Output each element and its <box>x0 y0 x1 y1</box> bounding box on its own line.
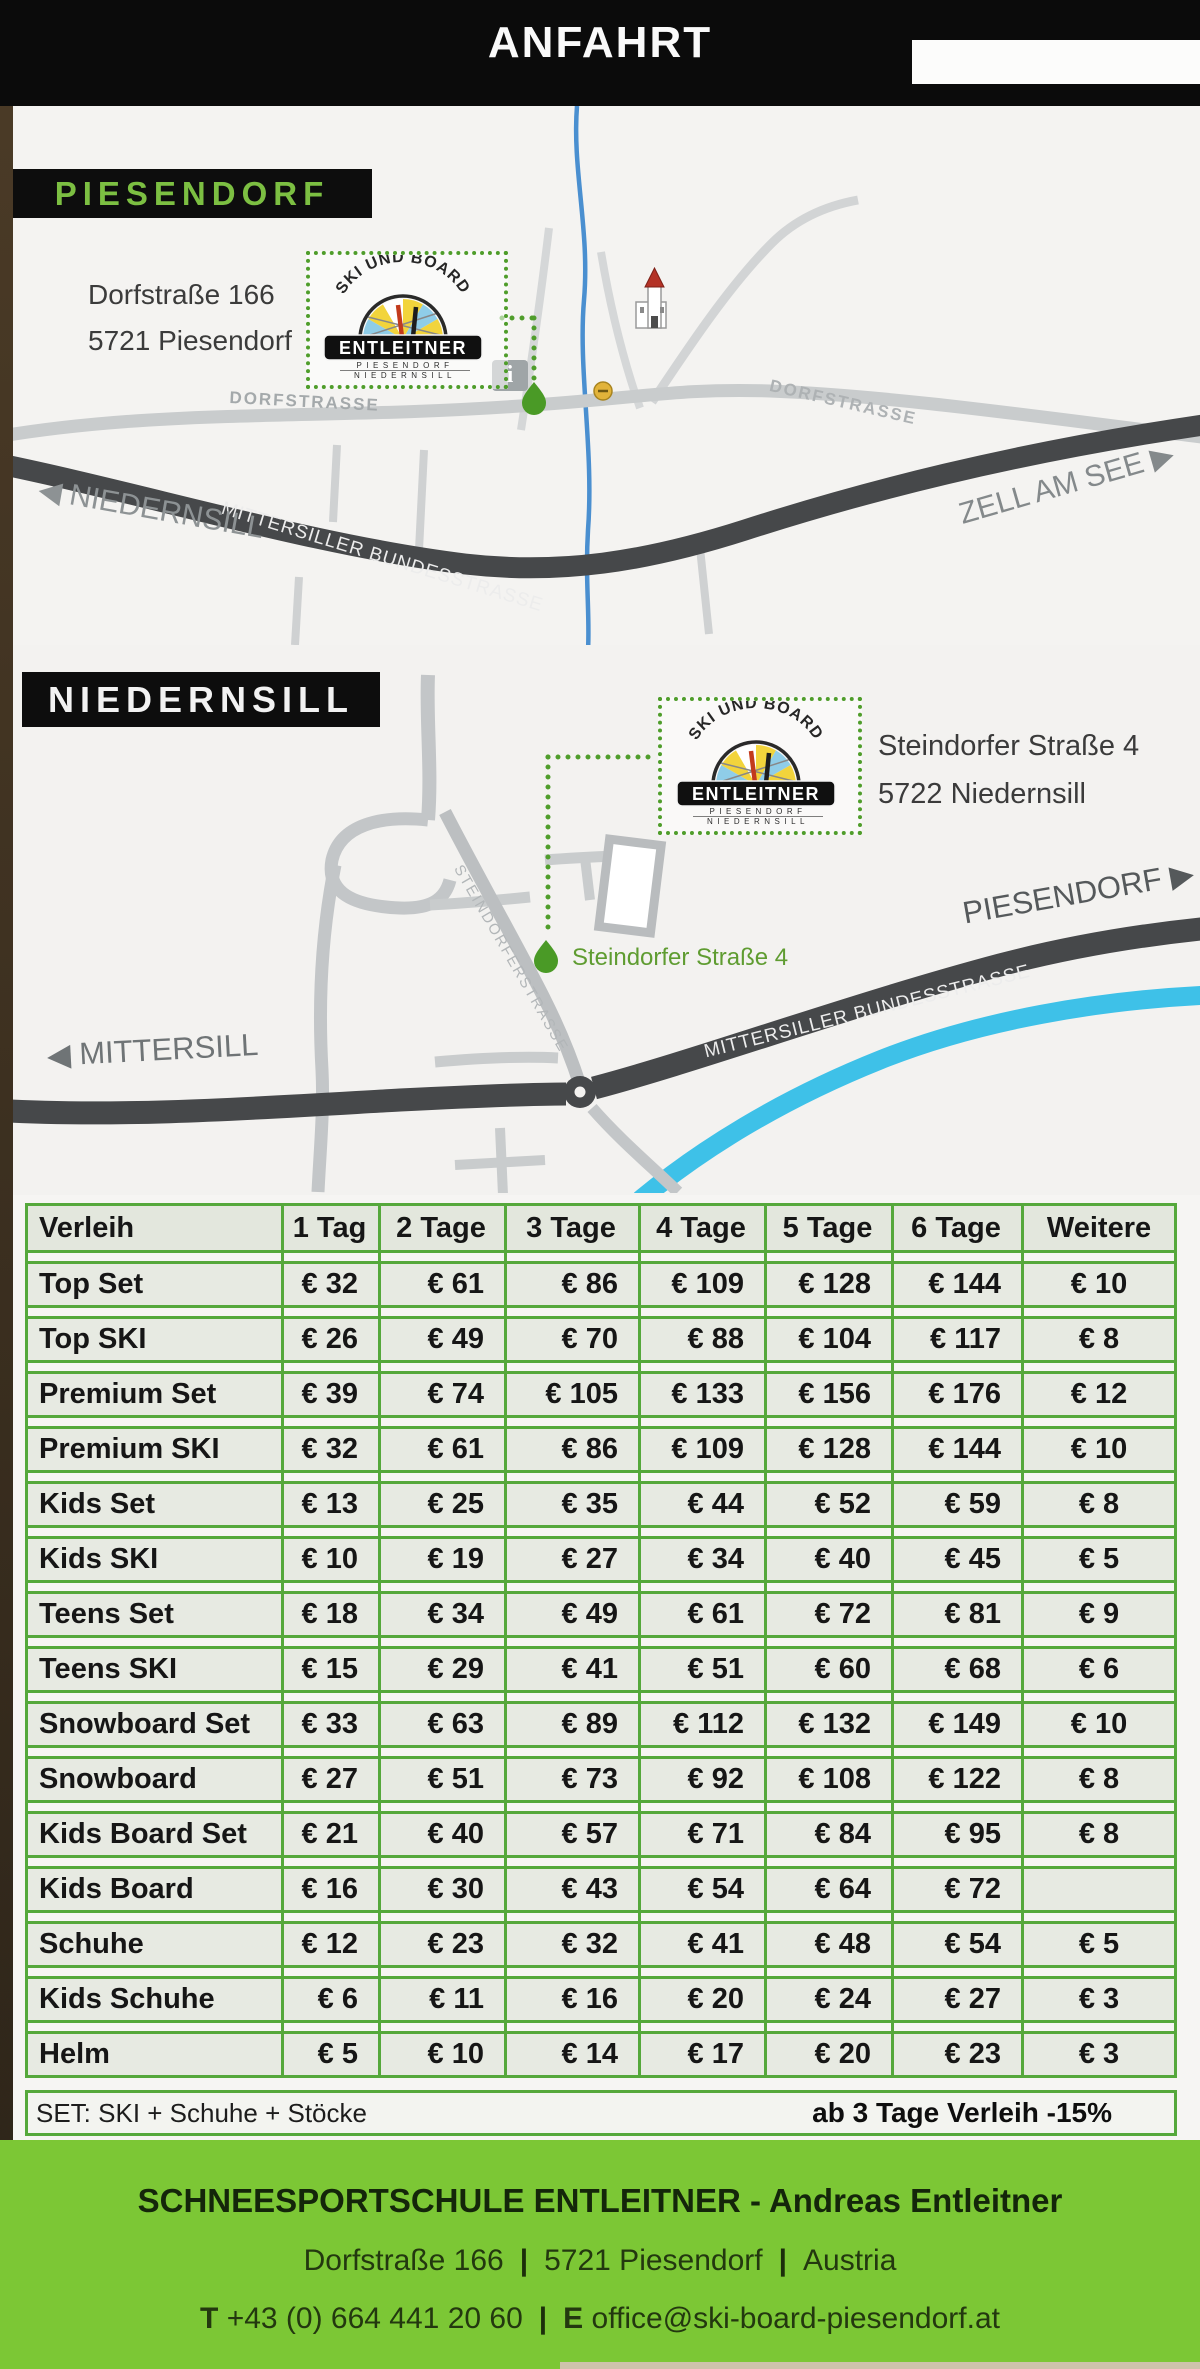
price-cell: € 3 <box>1021 1983 1177 2016</box>
photo-edge <box>560 2362 1200 2369</box>
price-cell: € 3 <box>1021 2038 1177 2071</box>
column-header: 1 Tag <box>281 1212 378 1245</box>
price-cell: € 61 <box>378 1433 504 1466</box>
price-cell: € 8 <box>1021 1818 1177 1851</box>
price-cell: € 73 <box>504 1763 638 1796</box>
price-cell: € 59 <box>891 1488 1021 1521</box>
price-cell: € 61 <box>378 1268 504 1301</box>
price-cell: € 39 <box>281 1378 378 1411</box>
section-label-niedernsill: NIEDERNSILL <box>22 672 380 727</box>
column-header: Weitere <box>1021 1212 1177 1245</box>
row-label: Snowboard <box>25 1763 281 1796</box>
logo-arc-text: SKI UND BOARD <box>333 255 474 297</box>
price-cell: € 89 <box>504 1708 638 1741</box>
table-row: Teens Set € 18 € 34 € 49 € 61 € 72 € 81 … <box>25 1591 1177 1638</box>
price-cell: € 32 <box>504 1928 638 1961</box>
price-cell: € 35 <box>504 1488 638 1521</box>
price-cell: € 12 <box>1021 1378 1177 1411</box>
row-label: Teens Set <box>25 1598 281 1631</box>
price-cell: € 24 <box>764 1983 891 2016</box>
header-bar: ANFAHRT <box>0 0 1200 106</box>
price-cell: € 49 <box>504 1598 638 1631</box>
price-cell: € 23 <box>891 2038 1021 2071</box>
price-cell: € 6 <box>281 1983 378 2016</box>
row-label: Kids Schuhe <box>25 1983 281 2016</box>
table-row: Snowboard € 27 € 51 € 73 € 92 € 108 € 12… <box>25 1756 1177 1803</box>
price-cell: € 63 <box>378 1708 504 1741</box>
row-label: Teens SKI <box>25 1653 281 1686</box>
table-header-row: Verleih 1 Tag 2 Tage 3 Tage 4 Tage 5 Tag… <box>25 1203 1177 1253</box>
price-cell: € 122 <box>891 1763 1021 1796</box>
price-cell: € 109 <box>638 1268 764 1301</box>
row-label: Premium Set <box>25 1378 281 1411</box>
price-cell: € 86 <box>504 1268 638 1301</box>
price-cell: € 18 <box>281 1598 378 1631</box>
table-row: Top SKI € 26 € 49 € 70 € 88 € 104 € 117 … <box>25 1316 1177 1363</box>
photo-edge <box>0 106 13 2140</box>
row-label: Kids SKI <box>25 1543 281 1576</box>
price-cell: € 95 <box>891 1818 1021 1851</box>
price-cell: € 44 <box>638 1488 764 1521</box>
price-cell: € 109 <box>638 1433 764 1466</box>
price-cell: € 54 <box>638 1873 764 1906</box>
footnote-discount: ab 3 Tage Verleih -15% <box>812 2097 1174 2129</box>
price-cell: € 19 <box>378 1543 504 1576</box>
price-cell: € 84 <box>764 1818 891 1851</box>
price-cell: € 72 <box>764 1598 891 1631</box>
logo-name: ENTLEITNER <box>339 338 467 358</box>
price-cell: € 10 <box>1021 1708 1177 1741</box>
price-cell: € 5 <box>281 2038 378 2071</box>
skier-figure <box>413 307 416 337</box>
price-cell: € 32 <box>281 1268 378 1301</box>
address-niedernsill: Steindorfer Straße 4 5722 Niedernsill <box>878 722 1139 818</box>
price-cell: € 5 <box>1021 1543 1177 1576</box>
price-cell: € 9 <box>1021 1598 1177 1631</box>
price-cell: € 14 <box>504 2038 638 2071</box>
price-cell: € 132 <box>764 1708 891 1741</box>
price-cell: € 8 <box>1021 1763 1177 1796</box>
price-cell: € 108 <box>764 1763 891 1796</box>
price-cell: € 61 <box>638 1598 764 1631</box>
table-row: Kids Board € 16 € 30 € 43 € 54 € 64 € 72 <box>25 1866 1177 1913</box>
price-cell: € 15 <box>281 1653 378 1686</box>
price-cell: € 21 <box>281 1818 378 1851</box>
price-cell: € 41 <box>504 1653 638 1686</box>
price-cell: € 27 <box>504 1543 638 1576</box>
row-label: Schuhe <box>25 1928 281 1961</box>
price-cell: € 12 <box>281 1928 378 1961</box>
row-label: Top Set <box>25 1268 281 1301</box>
price-cell: € 25 <box>378 1488 504 1521</box>
column-header: 4 Tage <box>638 1212 764 1245</box>
price-cell: € 34 <box>638 1543 764 1576</box>
footnote-set-definition: SET: SKI + Schuhe + Stöcke <box>28 2098 367 2129</box>
price-cell: € 49 <box>378 1323 504 1356</box>
logo-arc-text: SKI UND BOARD <box>686 701 827 743</box>
price-cell: € 54 <box>891 1928 1021 1961</box>
price-cell: € 8 <box>1021 1488 1177 1521</box>
price-cell: € 88 <box>638 1323 764 1356</box>
column-header: Verleih <box>25 1212 281 1245</box>
price-cell: € 72 <box>891 1873 1021 1906</box>
price-cell: € 74 <box>378 1378 504 1411</box>
price-cell: € 92 <box>638 1763 764 1796</box>
price-cell: € 13 <box>281 1488 378 1521</box>
price-cell: € 34 <box>378 1598 504 1631</box>
column-header: 3 Tage <box>504 1212 638 1245</box>
price-cell: € 33 <box>281 1708 378 1741</box>
table-row: Kids Board Set € 21 € 40 € 57 € 71 € 84 … <box>25 1811 1177 1858</box>
footer-company-line: SCHNEESPORTSCHULE ENTLEITNER - Andreas E… <box>0 2182 1200 2220</box>
price-cell: € 8 <box>1021 1323 1177 1356</box>
price-cell: € 144 <box>891 1433 1021 1466</box>
price-cell: € 40 <box>764 1543 891 1576</box>
section-label-piesendorf: PIESENDORF <box>12 169 372 218</box>
row-label: Kids Set <box>25 1488 281 1521</box>
price-cell: € 104 <box>764 1323 891 1356</box>
price-cell: € 86 <box>504 1433 638 1466</box>
price-cell: € 11 <box>378 1983 504 2016</box>
price-cell: € 6 <box>1021 1653 1177 1686</box>
table-row: Helm € 5 € 10 € 14 € 17 € 20 € 23 € 3 <box>25 2031 1177 2078</box>
price-cell: € 45 <box>891 1543 1021 1576</box>
price-cell: € 10 <box>281 1543 378 1576</box>
header-white-box <box>912 40 1200 84</box>
price-cell: € 133 <box>638 1378 764 1411</box>
column-header: 2 Tage <box>378 1212 504 1245</box>
price-cell: € 60 <box>764 1653 891 1686</box>
address-piesendorf: Dorfstraße 166 5721 Piesendorf <box>88 272 292 364</box>
row-label: Premium SKI <box>25 1433 281 1466</box>
row-label: Top SKI <box>25 1323 281 1356</box>
logo-sub2: NIEDERNSILL <box>354 371 456 379</box>
price-cell: € 52 <box>764 1488 891 1521</box>
price-cell: € 16 <box>281 1873 378 1906</box>
price-cell: € 64 <box>764 1873 891 1906</box>
row-label: Kids Board <box>25 1873 281 1906</box>
price-cell: € 23 <box>378 1928 504 1961</box>
price-cell: € 176 <box>891 1378 1021 1411</box>
table-row: Premium Set € 39 € 74 € 105 € 133 € 156 … <box>25 1371 1177 1418</box>
skier-figure <box>766 753 769 783</box>
price-cell: € 70 <box>504 1323 638 1356</box>
price-cell: € 48 <box>764 1928 891 1961</box>
flyer: ANFAHRT <box>0 0 1200 2369</box>
email-address: office@ski-board-piesendorf.at <box>592 2302 1000 2335</box>
table-row: Teens SKI € 15 € 29 € 41 € 51 € 60 € 68 … <box>25 1646 1177 1693</box>
price-cell: € 26 <box>281 1323 378 1356</box>
price-cell: € 20 <box>638 1983 764 2016</box>
price-cell: € 149 <box>891 1708 1021 1741</box>
marker-street-label: Steindorfer Straße 4 <box>572 944 788 972</box>
price-cell: € 128 <box>764 1433 891 1466</box>
price-cell: € 105 <box>504 1378 638 1411</box>
row-label: Kids Board Set <box>25 1818 281 1851</box>
price-cell: € 10 <box>1021 1433 1177 1466</box>
entleitner-logo: SKI UND BOARD ENTLEITNER PIESENDORF NIED… <box>658 697 862 835</box>
price-cell: € 128 <box>764 1268 891 1301</box>
row-label: Snowboard Set <box>25 1708 281 1741</box>
entleitner-logo: SKI UND BOARD ENTLEITNER PIESENDORF NIED… <box>306 251 508 389</box>
price-cell: € 16 <box>504 1983 638 2016</box>
price-cell: € 29 <box>378 1653 504 1686</box>
price-cell: € 57 <box>504 1818 638 1851</box>
row-label: Helm <box>25 2038 281 2071</box>
price-cell: € 117 <box>891 1323 1021 1356</box>
logo-sub1: PIESENDORF <box>356 361 453 370</box>
price-cell: € 32 <box>281 1433 378 1466</box>
logo-sub1: PIESENDORF <box>709 807 806 816</box>
footer-contact-line: T +43 (0) 664 441 20 60|E office@ski-boa… <box>0 2302 1200 2336</box>
footer-address-line: Dorfstraße 166|5721 Piesendorf|Austria <box>0 2244 1200 2278</box>
logo-name: ENTLEITNER <box>692 784 820 804</box>
table-row: Premium SKI € 32 € 61 € 86 € 109 € 128 €… <box>25 1426 1177 1473</box>
table-row: Schuhe € 12 € 23 € 32 € 41 € 48 € 54 € 5 <box>25 1921 1177 1968</box>
table-row: Kids Schuhe € 6 € 11 € 16 € 20 € 24 € 27… <box>25 1976 1177 2023</box>
price-cell: € 144 <box>891 1268 1021 1301</box>
table-row: Kids Set € 13 € 25 € 35 € 44 € 52 € 59 €… <box>25 1481 1177 1528</box>
price-cell: € 17 <box>638 2038 764 2071</box>
price-cell: € 156 <box>764 1378 891 1411</box>
price-rows: Top Set € 32 € 61 € 86 € 109 € 128 € 144… <box>25 1261 1177 2078</box>
price-cell: € 10 <box>1021 1268 1177 1301</box>
logo-sub2: NIEDERNSILL <box>707 817 809 825</box>
price-cell: € 51 <box>638 1653 764 1686</box>
price-cell: € 41 <box>638 1928 764 1961</box>
price-cell: € 30 <box>378 1873 504 1906</box>
table-row: Snowboard Set € 33 € 63 € 89 € 112 € 132… <box>25 1701 1177 1748</box>
email-label: E <box>563 2302 583 2335</box>
table-row: Top Set € 32 € 61 € 86 € 109 € 128 € 144… <box>25 1261 1177 1308</box>
price-cell: € 81 <box>891 1598 1021 1631</box>
price-cell: € 5 <box>1021 1928 1177 1961</box>
contact-footer: SCHNEESPORTSCHULE ENTLEITNER - Andreas E… <box>0 2140 1200 2369</box>
price-cell: € 43 <box>504 1873 638 1906</box>
table-row: Kids SKI € 10 € 19 € 27 € 34 € 40 € 45 €… <box>25 1536 1177 1583</box>
price-cell: € 51 <box>378 1763 504 1796</box>
price-table: Verleih 1 Tag 2 Tage 3 Tage 4 Tage 5 Tag… <box>0 1195 1200 2140</box>
table-footnote: SET: SKI + Schuhe + Stöcke ab 3 Tage Ver… <box>25 2090 1177 2136</box>
price-cell: € 71 <box>638 1818 764 1851</box>
price-cell: € 10 <box>378 2038 504 2071</box>
phone-number: +43 (0) 664 441 20 60 <box>227 2302 523 2335</box>
phone-label: T <box>200 2302 218 2335</box>
price-cell: € 27 <box>891 1983 1021 2016</box>
price-cell: € 68 <box>891 1653 1021 1686</box>
column-header: 5 Tage <box>764 1212 891 1245</box>
price-cell: € 27 <box>281 1763 378 1796</box>
price-cell: € 20 <box>764 2038 891 2071</box>
price-cell: € 112 <box>638 1708 764 1741</box>
price-cell: € 40 <box>378 1818 504 1851</box>
column-header: 6 Tage <box>891 1212 1021 1245</box>
